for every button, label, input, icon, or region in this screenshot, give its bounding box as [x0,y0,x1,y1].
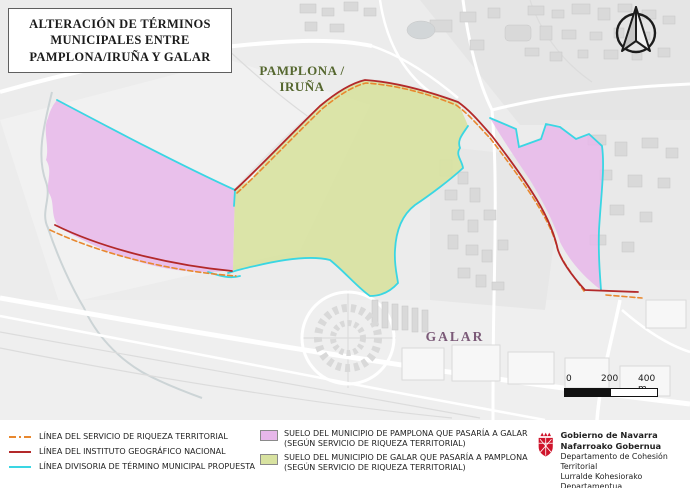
scale-tick-200: 200 [601,374,618,384]
legend-item-label: LÍNEA DEL SERVICIO DE RIQUEZA TERRITORIA… [39,432,228,441]
navarra-crest-icon [536,430,555,460]
scale-bar-fill [565,389,611,396]
legend-item-propuesta: LÍNEA DIVISORIA DE TÉRMINO MUNICIPAL PRO… [8,462,255,471]
cyan-line-swatch [8,463,32,471]
label-galar: GALAR [418,329,492,345]
legend-area-label: SUELO DEL MUNICIPIO DE PAMPLONA QUE PASA… [284,429,528,439]
orange-dashed-line-swatch [8,433,32,441]
legend-area-label: SUELO DEL MUNICIPIO DE GALAR QUE PASARÍA… [284,453,528,463]
map-title: ALTERACIÓN DE TÉRMINOS MUNICIPALES ENTRE… [8,8,232,73]
scale-bar: 0 200 400 m [564,374,664,400]
scale-bar-track [564,388,658,397]
green-area-swatch [260,454,278,465]
government-logo: Gobierno de Navarra Nafarroako Gobernua … [536,430,690,488]
legend-item-suelo-galar: SUELO DEL MUNICIPIO DE GALAR QUE PASARÍA… [260,453,528,473]
red-line-swatch [8,448,32,456]
legend-area-sublabel: (SEGÚN SERVICIO DE RIQUEZA TERRITORIAL) [284,463,528,473]
legend: LÍNEA DEL SERVICIO DE RIQUEZA TERRITORIA… [0,420,690,488]
map-title-text: ALTERACIÓN DE TÉRMINOS MUNICIPALES ENTRE… [29,17,211,64]
legend-area-entries: SUELO DEL MUNICIPIO DE PAMPLONA QUE PASA… [260,429,528,477]
legend-line-entries: LÍNEA DEL SERVICIO DE RIQUEZA TERRITORIA… [8,432,255,477]
north-arrow-icon [606,4,666,64]
label-pamplona-iruna: PAMPLONA / IRUÑA [245,63,359,94]
legend-area-sublabel: (SEGÚN SERVICIO DE RIQUEZA TERRITORIAL) [284,439,528,449]
legend-item-label: LÍNEA DIVISORIA DE TÉRMINO MUNICIPAL PRO… [39,462,255,471]
logo-dept-es: Departamento de Cohesión Territorial [560,452,690,472]
map-figure: ALTERACIÓN DE TÉRMINOS MUNICIPALES ENTRE… [0,0,690,488]
legend-item-suelo-pamplona: SUELO DEL MUNICIPIO DE PAMPLONA QUE PASA… [260,429,528,449]
logo-org-eu: Nafarroako Gobernua [560,441,690,452]
legend-item-riqueza-territorial: LÍNEA DEL SERVICIO DE RIQUEZA TERRITORIA… [8,432,255,441]
scale-tick-0: 0 [566,374,572,384]
logo-dept-eu: Lurralde Kohesiorako Departamentua [560,472,690,488]
pink-area-swatch [260,430,278,441]
legend-item-label: LÍNEA DEL INSTITUTO GEOGRÁFICO NACIONAL [39,447,226,456]
legend-item-ign: LÍNEA DEL INSTITUTO GEOGRÁFICO NACIONAL [8,447,255,456]
logo-org-es: Gobierno de Navarra [560,430,690,441]
